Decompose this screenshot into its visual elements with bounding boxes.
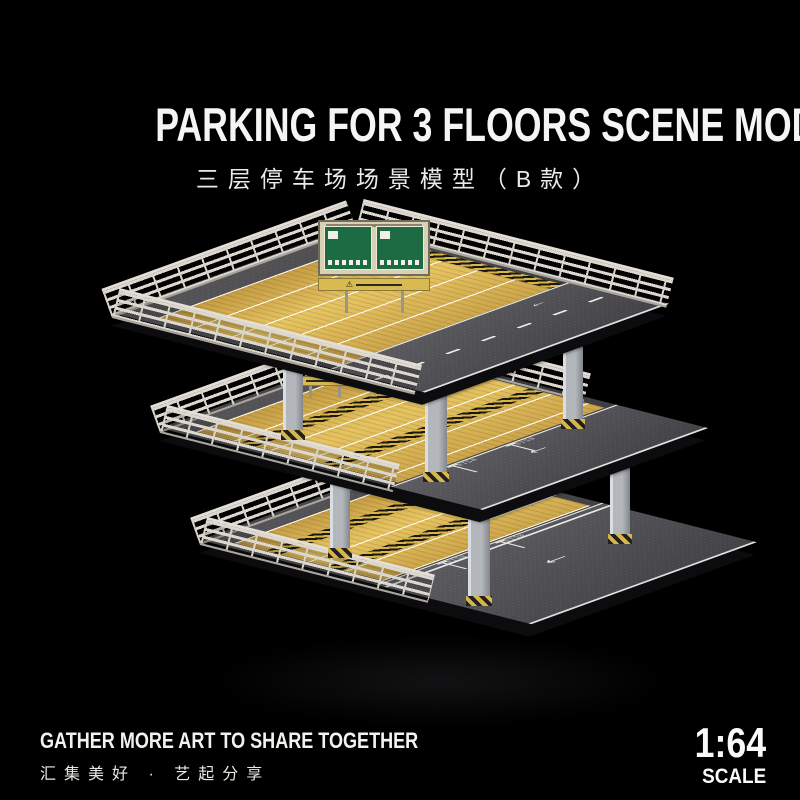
green-sign-icon (376, 226, 424, 270)
scale-value: 1:64 (682, 722, 766, 764)
scale-label: SCALE (682, 766, 766, 787)
green-sign-icon (324, 226, 372, 270)
scale-badge: 1:64 SCALE (682, 722, 766, 787)
floor-reflection (210, 636, 670, 726)
parking-model-scene: 6129 6129 ← 6129 6129 ← (0, 0, 800, 800)
footer-slogan-cn: 汇集美好 · 艺起分享 (40, 760, 270, 784)
warning-text-bar (356, 284, 402, 286)
sign-posts (296, 386, 354, 398)
warning-strip: ⚠ (318, 278, 430, 291)
product-poster: PARKING FOR 3 FLOORS SCENE MODEL （SECTIO… (0, 0, 800, 800)
footer-slogan-en: GATHER MORE ART TO SHARE TOGETHER (40, 728, 501, 754)
highway-sign-board: ⚠ (318, 220, 430, 313)
sign-board (318, 220, 430, 276)
warning-triangle-icon: ⚠ (346, 281, 353, 289)
sign-posts (318, 291, 430, 313)
